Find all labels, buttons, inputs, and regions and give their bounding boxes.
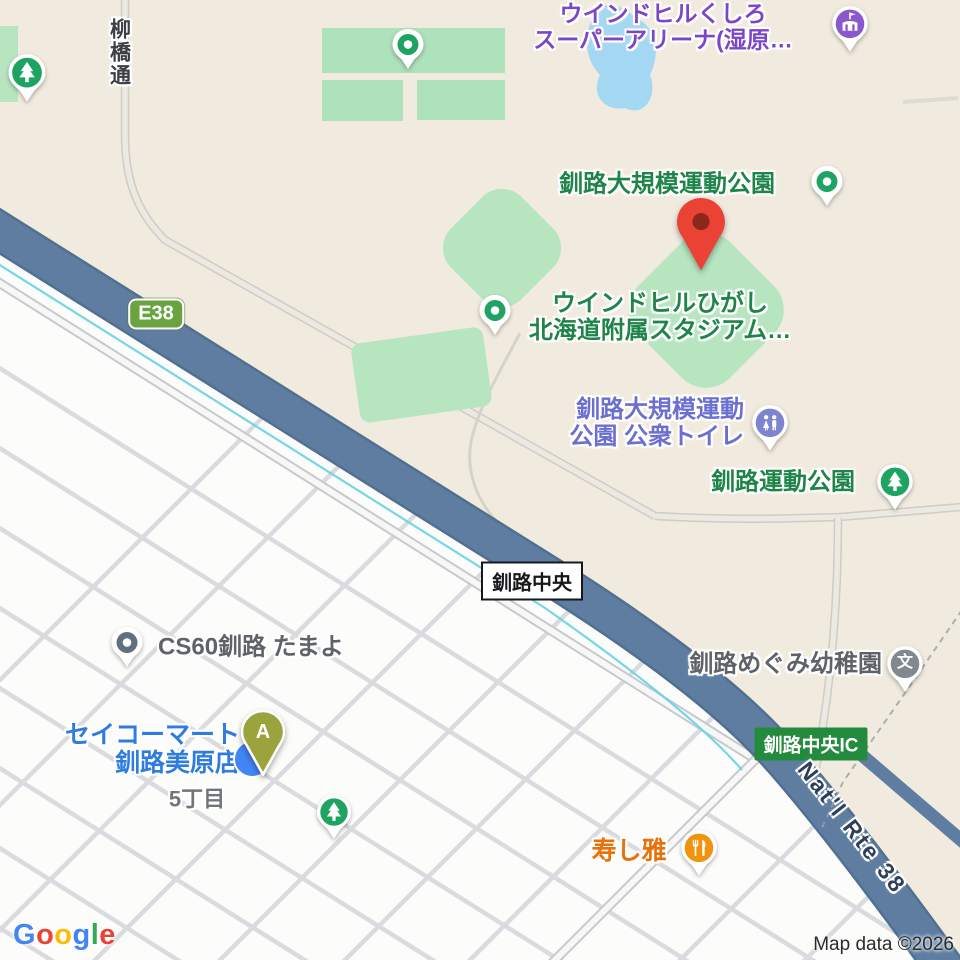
marker-a-letter: A — [241, 720, 285, 744]
google-logo-letter: o — [36, 919, 54, 951]
poi-label-cs60-kushiro-tamayo[interactable]: CS60釧路 たまよ — [158, 635, 344, 662]
e38-route-shield: E38 — [128, 299, 184, 330]
poi-label-seicomart-mihara[interactable]: セイコーマート 釧路美原店 — [65, 721, 240, 777]
map-attribution: Map data ©2026 — [813, 934, 954, 956]
map-viewport[interactable]: 柳橋通 E38 釧路中央 釧路中央IC Nat'l Rte 38 ウインドヒルく… — [0, 0, 960, 960]
tree-icon — [875, 463, 915, 511]
park-dot-pin[interactable] — [810, 165, 844, 207]
school-pin[interactable]: 文 — [885, 645, 925, 693]
poi-dot-icon — [810, 165, 844, 207]
destination-pin-icon — [676, 197, 726, 272]
google-logo-letter: o — [54, 919, 72, 951]
poi-label-sushi-masa[interactable]: 寿し雅 — [591, 837, 666, 865]
park-dot-pin[interactable] — [391, 28, 425, 70]
poi-label-windhill-kushiro-arena[interactable]: ウインドヒルくしろ スーパーアリーナ(湿原… — [533, 1, 793, 53]
tree-pin[interactable] — [875, 463, 915, 511]
google-logo-letter: G — [13, 919, 36, 951]
google-logo-letter: e — [99, 919, 116, 951]
marker-a[interactable]: A — [241, 710, 285, 781]
google-logo[interactable]: Google — [13, 919, 116, 952]
google-logo-letter: g — [73, 919, 91, 951]
junction-badge-kushiro-chuo: 釧路中央 — [481, 562, 583, 601]
tree-icon — [315, 794, 353, 840]
road-label-yanagibashi: 柳橋通 — [107, 18, 131, 87]
toilet-pin[interactable] — [750, 404, 790, 452]
tree-icon — [6, 53, 48, 103]
tree-pin[interactable] — [315, 794, 353, 840]
poi-dot-icon — [110, 626, 144, 668]
poi-label-kushiro-sports-park[interactable]: 釧路運動公園 — [711, 470, 855, 497]
stadium-dot-pin[interactable] — [478, 294, 512, 336]
fork-knife-icon — [679, 829, 719, 877]
poi-label-windhill-higashi-stadium[interactable]: ウインドヒルひがし 北海道附属スタジアム… — [529, 291, 791, 345]
arena-pin[interactable] — [830, 5, 870, 53]
poi-label-kushiro-megumi-kindergarten[interactable]: 釧路めぐみ幼稚園 — [689, 652, 882, 679]
stadium-building-icon — [830, 5, 870, 53]
poi-dot-icon — [478, 294, 512, 336]
poi-label-public-toilet[interactable]: 釧路大規模運動 公園 公衆トイレ — [569, 397, 744, 451]
poi-dot-icon — [391, 28, 425, 70]
cs60-dot-pin[interactable] — [110, 626, 144, 668]
restaurant-pin[interactable] — [679, 829, 719, 877]
restroom-icon — [750, 404, 790, 452]
district-label-5chome: 5丁目 — [169, 788, 225, 813]
school-glyph: 文 — [885, 654, 925, 672]
poi-label-kushiro-large-sports-park[interactable]: 釧路大規模運動公園 — [559, 172, 775, 199]
ic-badge-kushiro-chuo-ic: 釧路中央IC — [754, 728, 867, 761]
destination-marker[interactable] — [676, 197, 726, 277]
tree-pin[interactable] — [6, 53, 48, 103]
google-logo-letter: l — [91, 919, 100, 951]
